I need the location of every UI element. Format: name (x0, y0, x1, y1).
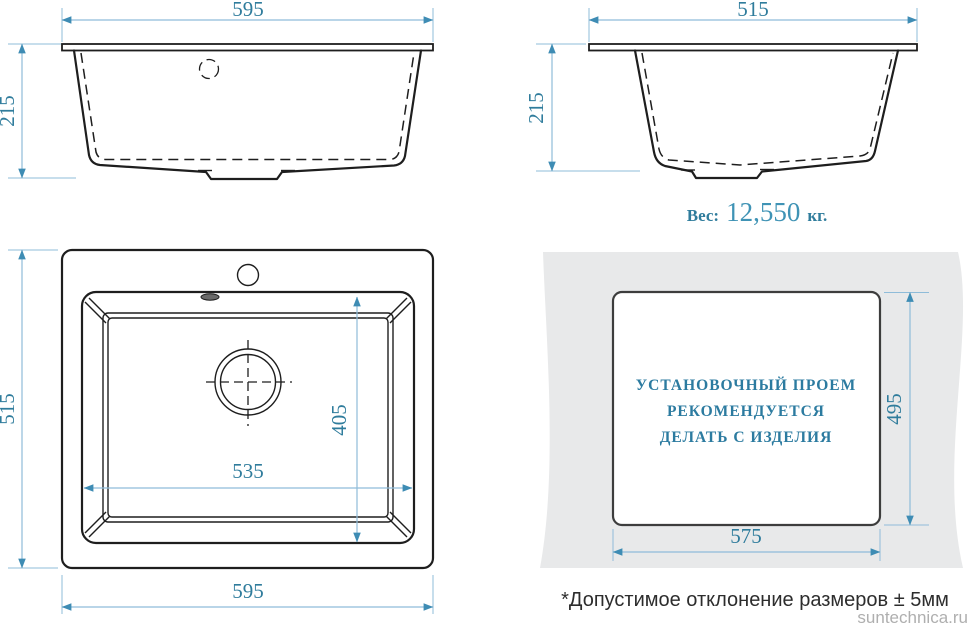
sink-rim (62, 44, 433, 51)
bowl-hidden-contour (81, 53, 414, 160)
installation-view: УСТАНОВОЧНЫЙ ПРОЕМ РЕКОМЕНДУЕТСЯ ДЕЛАТЬ … (540, 252, 963, 568)
dimension-label: 515 (0, 393, 19, 425)
dimension-label: 515 (737, 0, 769, 21)
weight-unit: кг. (807, 206, 827, 225)
weight-label: Вес: (687, 206, 719, 225)
weight-value: 12,550 (726, 197, 800, 227)
dimension-label: 405 (327, 404, 351, 436)
overflow-hole (201, 294, 219, 300)
overflow-hole-hidden (200, 60, 219, 79)
drawing-svg: 595 215 515 215 (0, 0, 970, 629)
top-view-width-dimension: 595 (62, 575, 433, 614)
side-view-width-dimension: 515 (589, 0, 917, 42)
side-view-height-dimension: 215 (524, 44, 640, 171)
bowl-depth-dimension: 405 (327, 297, 357, 542)
drain (206, 340, 292, 426)
dimension-label: 215 (0, 95, 19, 127)
faucet-hole (238, 265, 259, 286)
bowl-width-dimension: 535 (84, 459, 412, 488)
front-view-width-dimension: 595 (62, 0, 433, 42)
dimension-label: 495 (882, 393, 906, 425)
cutout-note-line1: УСТАНОВОЧНЫЙ ПРОЕМ (636, 377, 857, 394)
side-view: 515 215 Вес:12,550кг. (524, 0, 917, 227)
weight-caption: Вес:12,550кг. (687, 197, 827, 227)
front-view: 595 215 (0, 0, 433, 179)
cutout-note-line2: РЕКОМЕНДУЕТСЯ (667, 403, 825, 420)
top-view: 515 595 535 (0, 250, 433, 614)
cutout-note-line3: ДЕЛАТЬ С ИЗДЕЛИЯ (660, 429, 833, 446)
bowl-outline (635, 51, 898, 179)
dimension-label: 595 (232, 579, 264, 603)
dimension-label: 595 (232, 0, 264, 21)
watermark: suntechnica.ru (857, 608, 968, 627)
sink-technical-drawing: 595 215 515 215 (0, 0, 970, 629)
front-view-height-dimension: 215 (0, 44, 76, 178)
bowl-hidden-contour (642, 53, 893, 165)
dimension-label: 535 (232, 459, 264, 483)
dimension-label: 575 (730, 524, 762, 548)
dimension-label: 215 (524, 92, 548, 124)
sink-rim (589, 44, 917, 51)
top-view-depth-dimension: 515 (0, 250, 58, 568)
